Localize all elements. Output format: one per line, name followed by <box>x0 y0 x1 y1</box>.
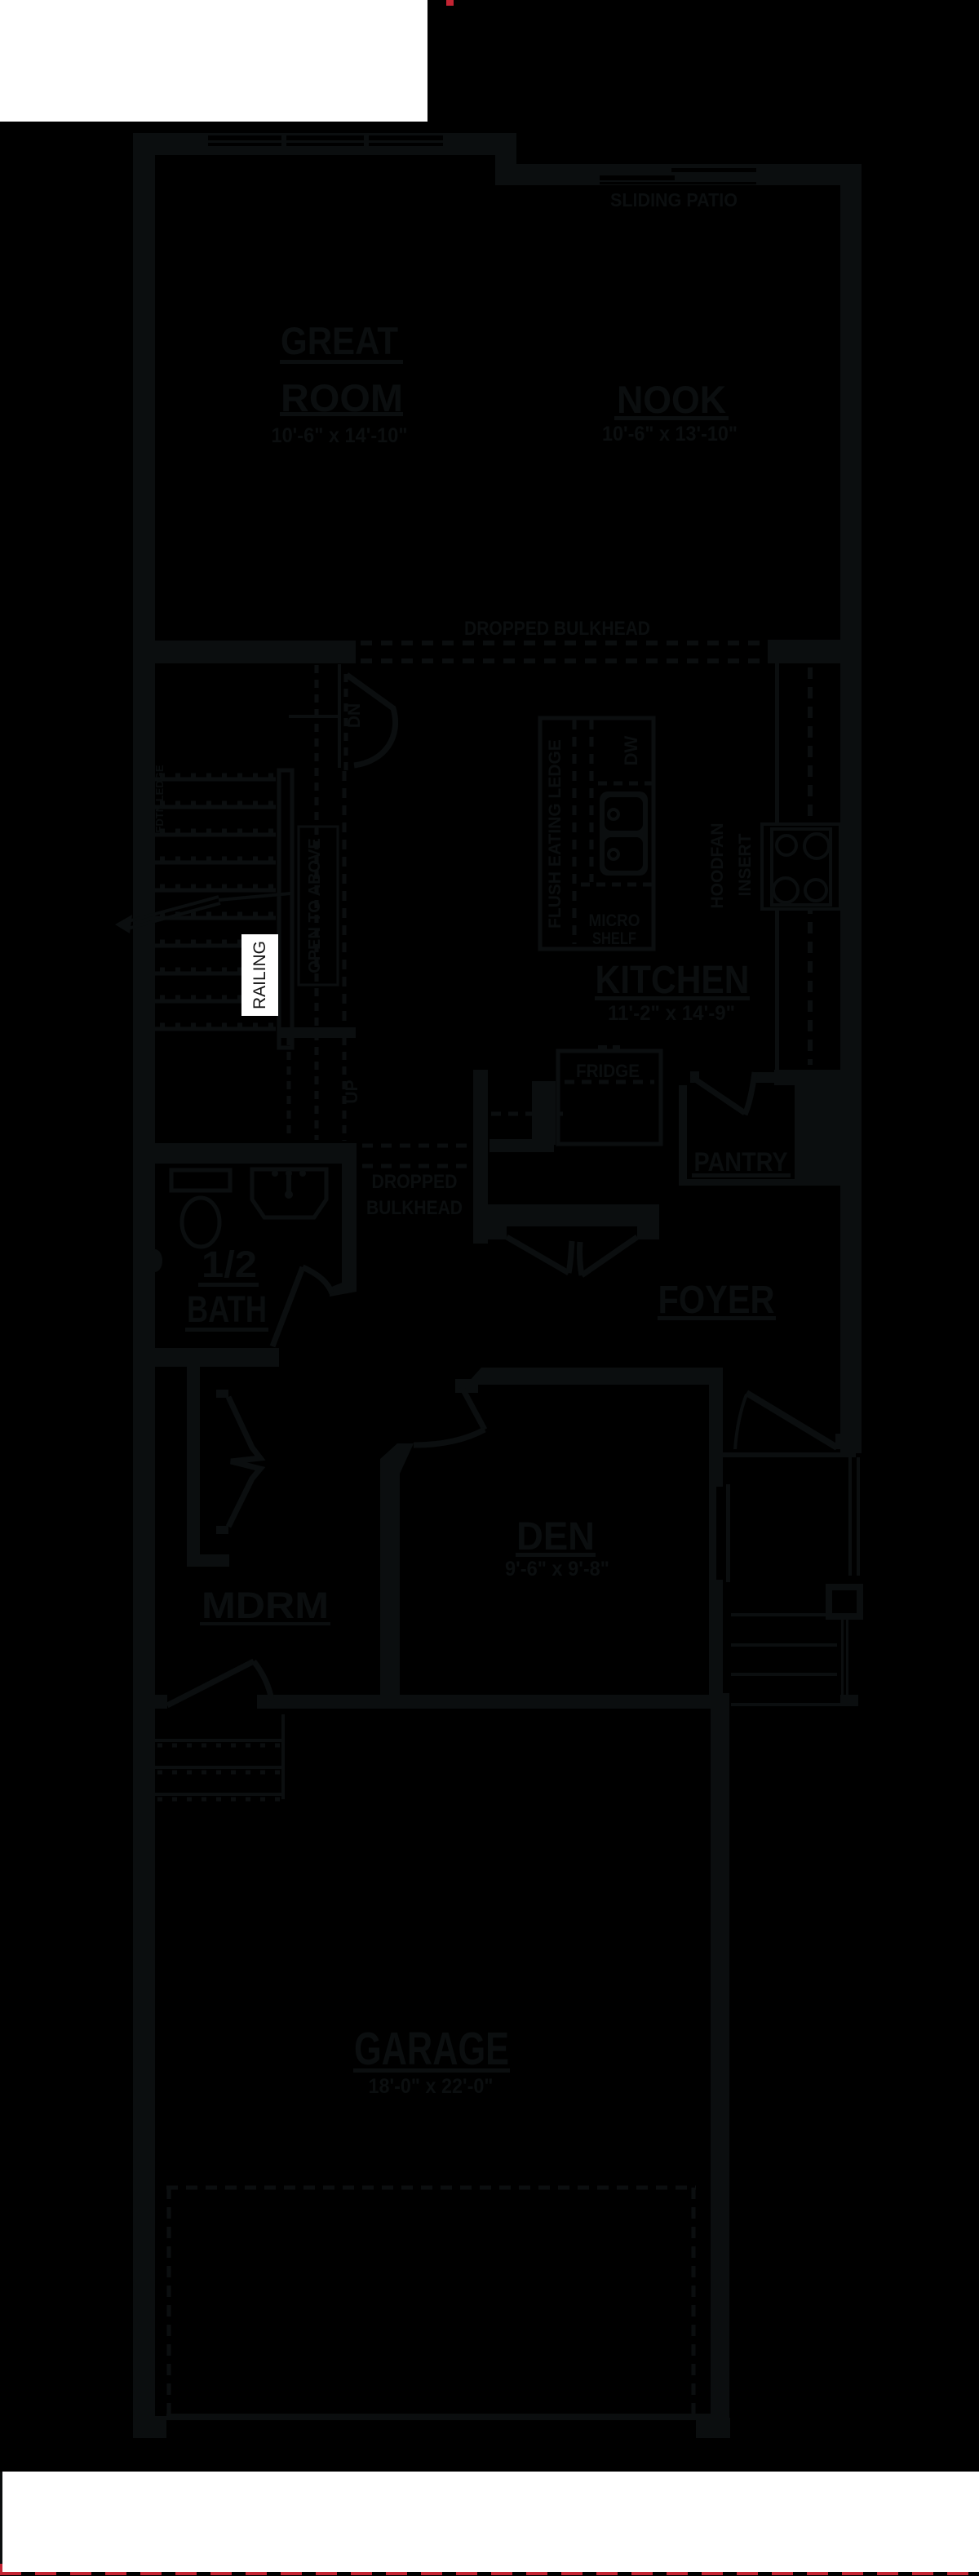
svg-text:UP: UP <box>343 1080 361 1103</box>
svg-text:DN: DN <box>345 703 364 728</box>
svg-text:DROPPED BULKHEAD: DROPPED BULKHEAD <box>464 618 650 640</box>
svg-text:SLIDING PATIO: SLIDING PATIO <box>610 189 738 211</box>
svg-text:MDRM: MDRM <box>202 1585 329 1626</box>
svg-text:GREAT: GREAT <box>281 319 398 362</box>
svg-text:SHELF: SHELF <box>592 929 636 948</box>
svg-text:BATH: BATH <box>187 1288 267 1330</box>
svg-text:10'-6" x 13'-10": 10'-6" x 13'-10" <box>602 423 738 446</box>
svg-text:FOYER: FOYER <box>658 1279 775 1322</box>
svg-text:11'-2" x 14'-9": 11'-2" x 14'-9" <box>608 1002 735 1025</box>
svg-text:MICRO: MICRO <box>589 911 640 930</box>
svg-text:GARAGE: GARAGE <box>354 2023 509 2075</box>
svg-text:9'-6" x 9'-8": 9'-6" x 9'-8" <box>505 1558 609 1581</box>
svg-text:HOODFAN: HOODFAN <box>708 823 727 909</box>
svg-text:DW: DW <box>621 735 641 765</box>
svg-text:INSERT: INSERT <box>736 833 755 896</box>
svg-text:1/2: 1/2 <box>202 1244 257 1285</box>
svg-text:BULKHEAD: BULKHEAD <box>366 1197 463 1219</box>
svg-text:PANTRY: PANTRY <box>694 1147 788 1177</box>
svg-text:NOOK: NOOK <box>617 378 726 421</box>
svg-text:DROPPED: DROPPED <box>372 1171 458 1193</box>
svg-text:KITCHEN: KITCHEN <box>596 959 750 1002</box>
svg-text:RAILING: RAILING <box>250 941 269 1009</box>
svg-text:18'-0" x 22'-0": 18'-0" x 22'-0" <box>369 2075 494 2098</box>
svg-text:FRIDGE: FRIDGE <box>576 1061 640 1081</box>
svg-text:FLUSH EATING LEDGE: FLUSH EATING LEDGE <box>546 739 565 929</box>
svg-text:DEN: DEN <box>516 1515 595 1558</box>
svg-text:10'-6" x 14'-10": 10'-6" x 14'-10" <box>272 424 408 447</box>
svg-text:FDTN LEDGE: FDTN LEDGE <box>153 765 166 832</box>
